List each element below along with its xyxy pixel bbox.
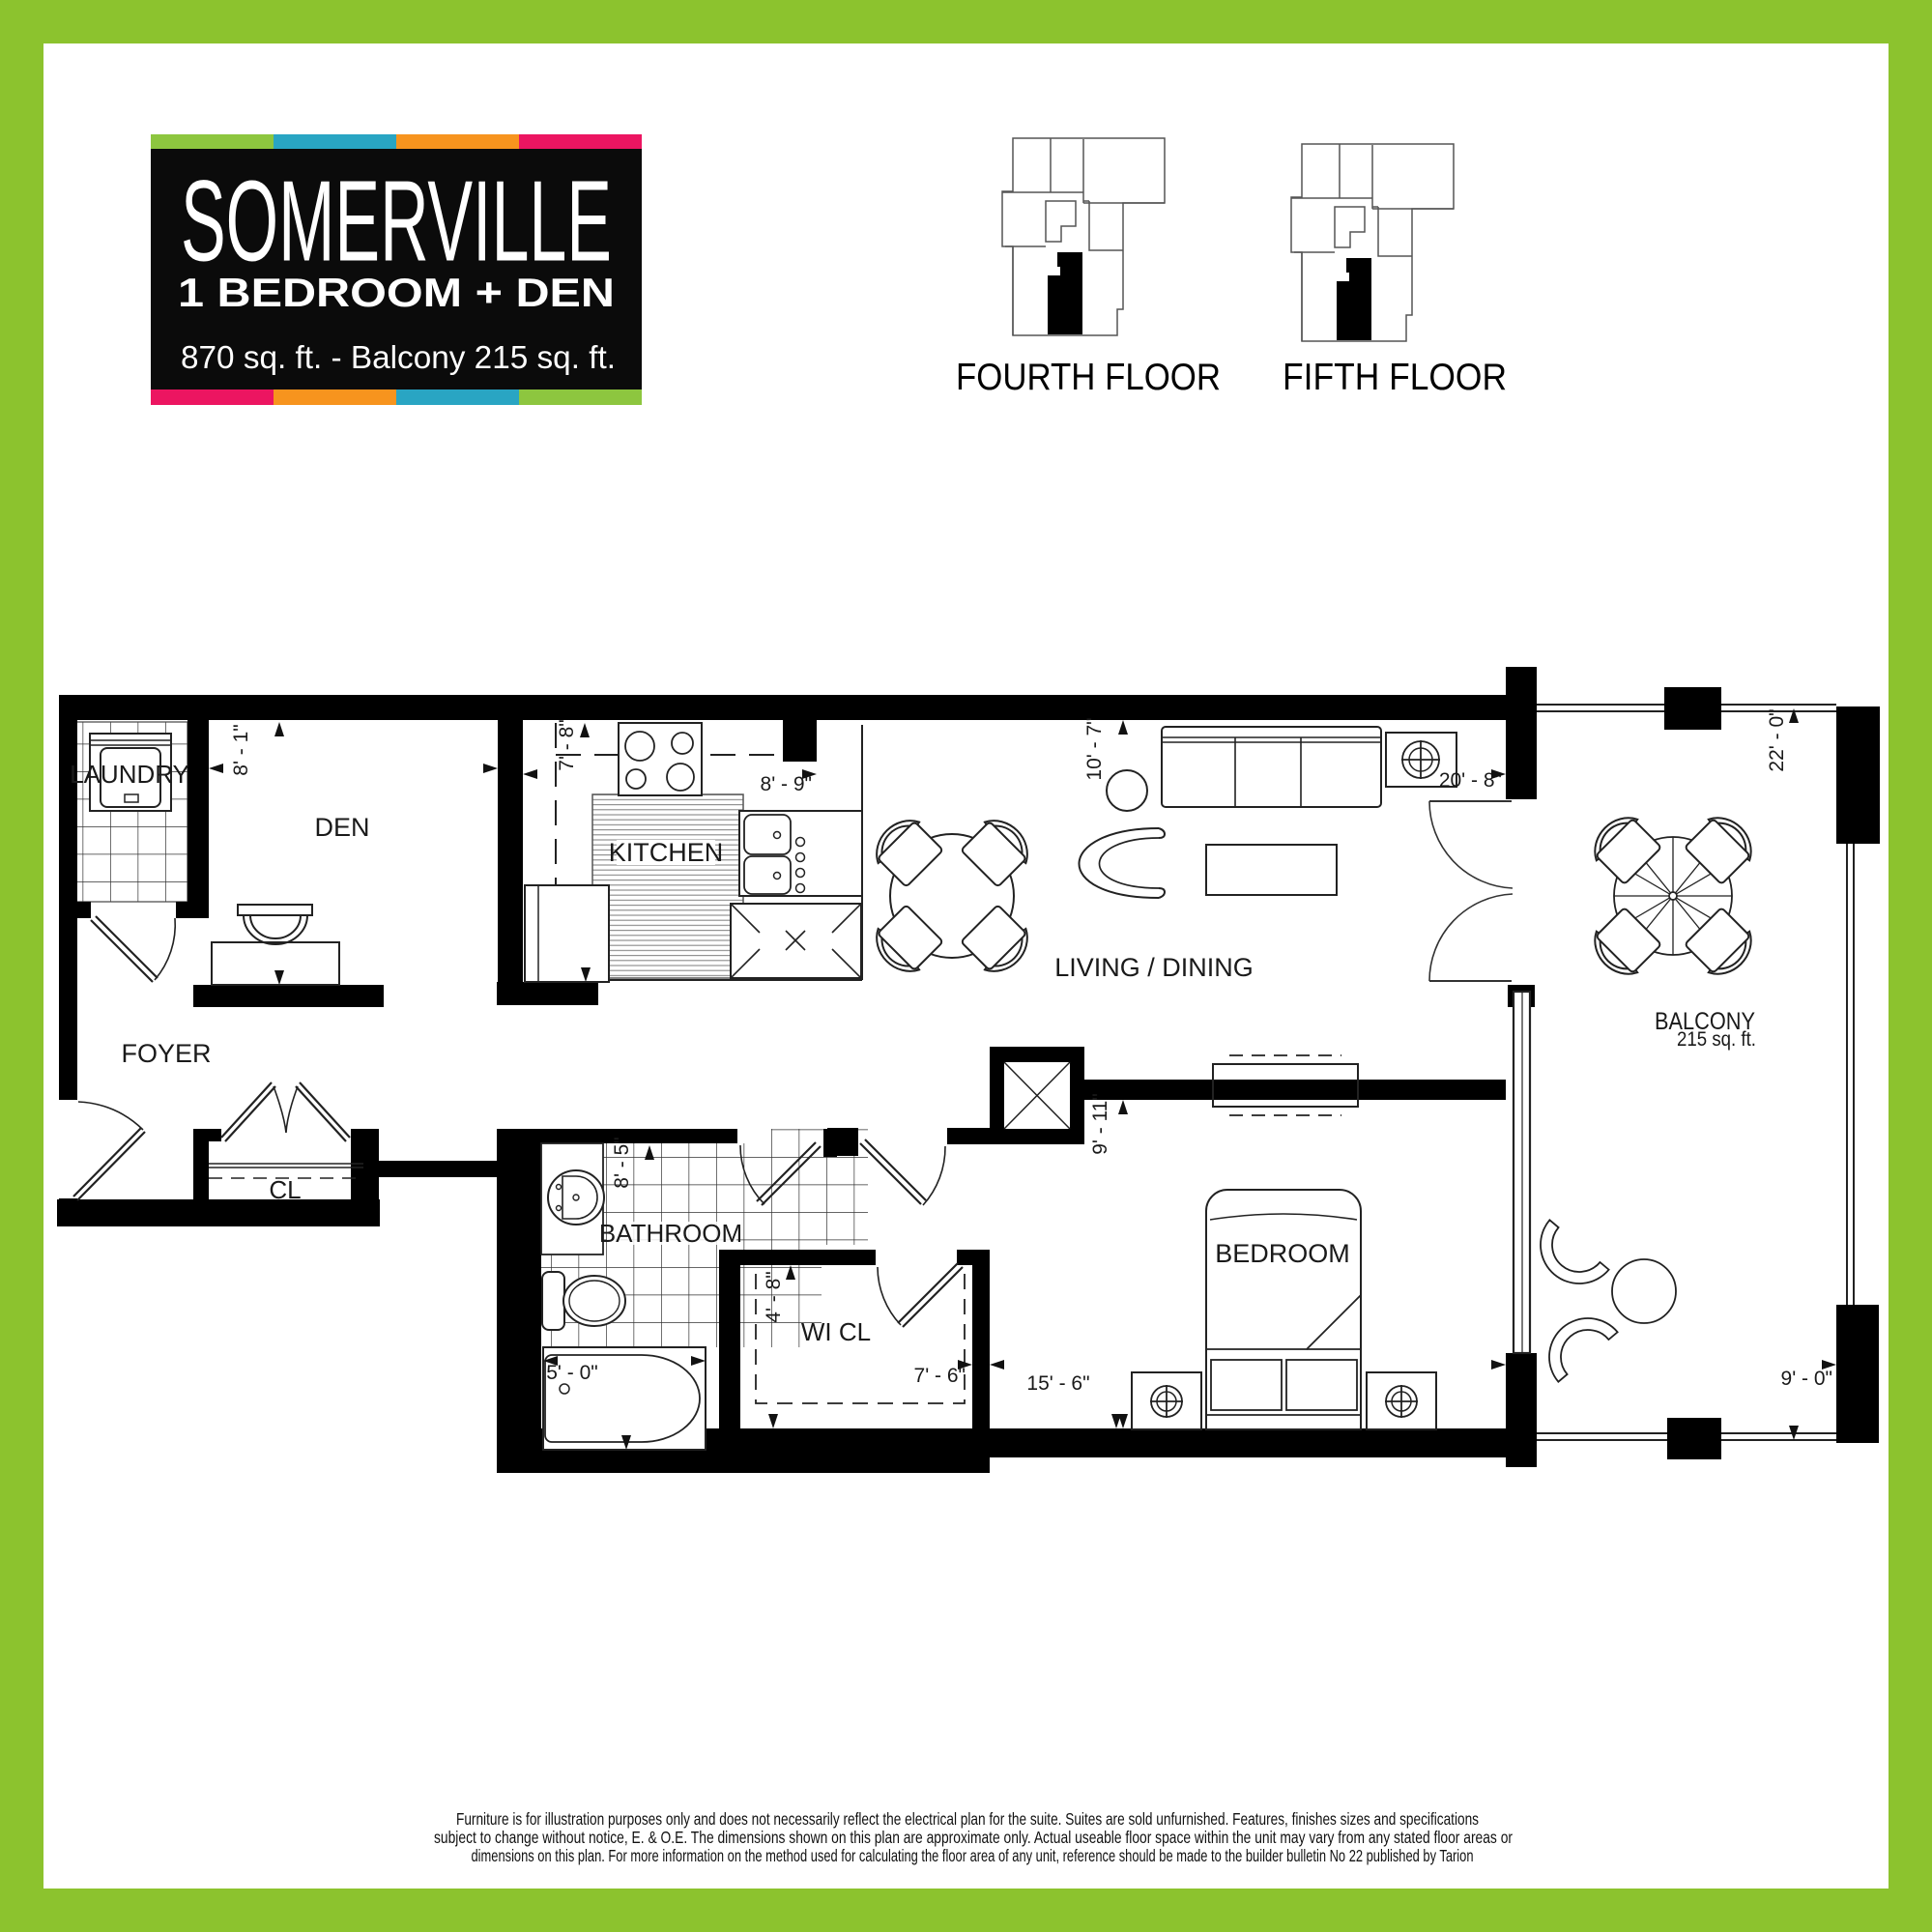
svg-text:7' - 6": 7' - 6"	[914, 1365, 966, 1387]
svg-text:870 sq. ft. - Balcony 215 sq.: 870 sq. ft. - Balcony 215 sq. ft.	[181, 339, 616, 375]
svg-text:BEDROOM: BEDROOM	[1215, 1239, 1350, 1268]
svg-text:FOYER: FOYER	[121, 1039, 211, 1068]
svg-text:8' - 5": 8' - 5"	[611, 1137, 633, 1188]
svg-text:22' - 0": 22' - 0"	[1766, 708, 1788, 771]
svg-text:DEN: DEN	[314, 813, 369, 842]
svg-text:FIFTH FLOOR: FIFTH FLOOR	[1283, 357, 1507, 398]
svg-text:subject to change without noti: subject to change without notice, E. & O…	[434, 1828, 1513, 1847]
svg-text:LAUNDRY: LAUNDRY	[70, 760, 189, 789]
svg-text:LIVING / DINING: LIVING / DINING	[1054, 953, 1254, 982]
svg-text:10' - 7": 10' - 7"	[1083, 717, 1106, 780]
svg-text:dimensions on this plan. For m: dimensions on this plan. For more inform…	[472, 1846, 1474, 1865]
svg-text:Furniture is for illustration: Furniture is for illustration purposes o…	[456, 1809, 1479, 1829]
svg-text:FOURTH FLOOR: FOURTH FLOOR	[956, 357, 1221, 398]
svg-text:KITCHEN: KITCHEN	[609, 838, 724, 867]
svg-text:9' - 0": 9' - 0"	[1781, 1368, 1832, 1390]
svg-text:5' - 0": 5' - 0"	[546, 1362, 597, 1384]
svg-text:1 BEDROOM + DEN: 1 BEDROOM + DEN	[178, 270, 615, 315]
svg-text:9' - 11": 9' - 11"	[1089, 1093, 1111, 1155]
svg-text:8' - 1": 8' - 1"	[230, 724, 252, 775]
svg-text:15' - 6": 15' - 6"	[1026, 1372, 1089, 1395]
svg-text:WI CL: WI CL	[801, 1317, 871, 1346]
svg-text:7' - 8": 7' - 8"	[556, 719, 578, 770]
svg-text:4' - 8": 4' - 8"	[763, 1271, 785, 1322]
svg-text:SOMERVILLE: SOMERVILLE	[181, 158, 612, 286]
svg-text:BATHROOM: BATHROOM	[599, 1219, 742, 1248]
svg-text:CL: CL	[269, 1175, 301, 1204]
svg-text:215 sq. ft.: 215 sq. ft.	[1677, 1028, 1756, 1051]
